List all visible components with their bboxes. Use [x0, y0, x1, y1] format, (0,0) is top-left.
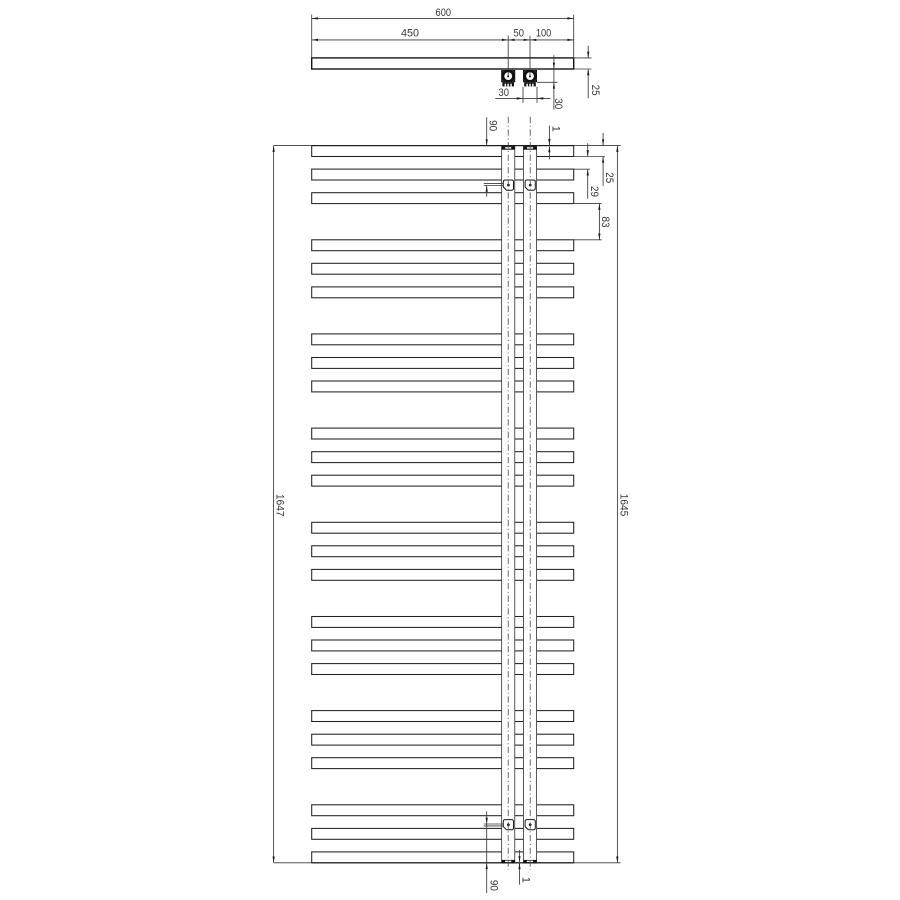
svg-text:1: 1 [549, 126, 561, 132]
svg-text:90: 90 [487, 120, 499, 131]
svg-text:25: 25 [589, 85, 601, 96]
svg-text:450: 450 [401, 28, 419, 40]
svg-text:1647: 1647 [274, 494, 286, 517]
svg-text:600: 600 [436, 7, 452, 19]
svg-text:30: 30 [552, 98, 564, 109]
svg-text:100: 100 [536, 28, 552, 40]
svg-text:1645: 1645 [618, 494, 630, 517]
svg-text:90: 90 [488, 880, 500, 891]
svg-text:1: 1 [520, 877, 532, 883]
svg-text:29: 29 [588, 186, 600, 197]
svg-text:50: 50 [514, 28, 525, 40]
svg-text:30: 30 [499, 87, 510, 99]
svg-text:25: 25 [603, 172, 615, 183]
svg-text:83: 83 [599, 217, 611, 228]
